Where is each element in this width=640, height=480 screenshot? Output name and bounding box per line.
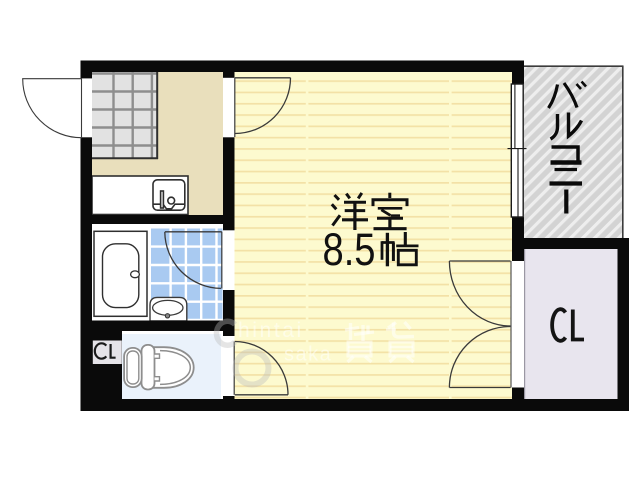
- svg-text:hintai: hintai: [238, 319, 304, 342]
- svg-text:8.5: 8.5: [323, 224, 376, 275]
- svg-text:saka: saka: [284, 344, 332, 366]
